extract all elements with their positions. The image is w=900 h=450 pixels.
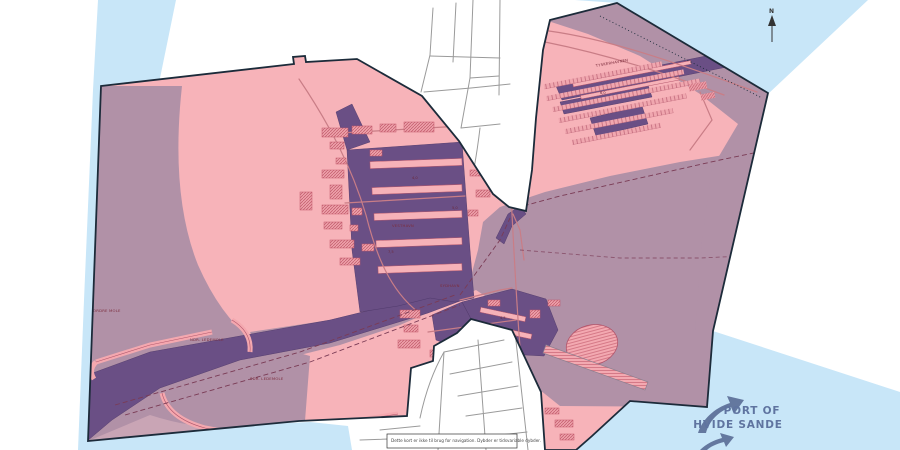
label-ndr-ledemole: NDR. LEDEMOLE (190, 337, 224, 342)
sounding-3: 5,0 (452, 206, 458, 210)
logo-line1: PORT OF (724, 405, 781, 417)
port-map-page: NORDRE MOLE NDR. LEDEMOLE SDR. LEDEMOLE … (0, 0, 900, 450)
north-label: N (769, 8, 774, 15)
harbour-map: NORDRE MOLE NDR. LEDEMOLE SDR. LEDEMOLE … (0, 0, 900, 450)
label-vesthavn: VESTHAVN (392, 223, 414, 228)
label-sdr-ledemole: SDR. LEDEMOLE (250, 376, 284, 381)
logo-line2: HVIDE SANDE (693, 419, 783, 431)
label-nordre-mole: NORDRE MOLE (90, 308, 121, 313)
sounding-1: 7,5 (388, 250, 394, 254)
sounding-5: 6,0 (600, 91, 606, 95)
label-sydhavn: SYDHAVN (440, 283, 460, 288)
disclaimer-text: Dette kort er ikke til brug for navigati… (391, 438, 541, 443)
sounding-4: 4,5 (500, 316, 506, 320)
sounding-2: 4,0 (412, 176, 418, 180)
